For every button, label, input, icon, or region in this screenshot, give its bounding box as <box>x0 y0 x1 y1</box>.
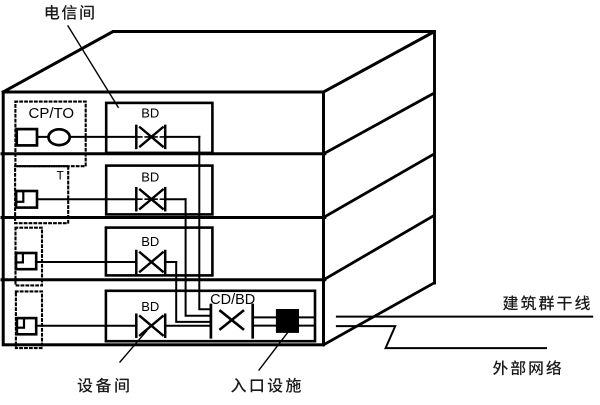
svg-text:CP/TO: CP/TO <box>29 105 75 122</box>
svg-text:BD: BD <box>141 299 159 314</box>
svg-text:BD: BD <box>141 105 159 120</box>
svg-text:T: T <box>57 169 65 183</box>
svg-text:BD: BD <box>141 170 159 185</box>
svg-text:CD/BD: CD/BD <box>210 292 255 308</box>
svg-text:BD: BD <box>141 234 159 249</box>
